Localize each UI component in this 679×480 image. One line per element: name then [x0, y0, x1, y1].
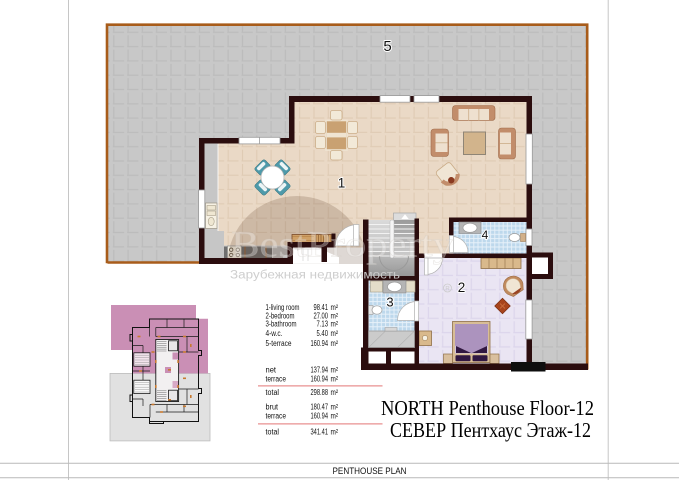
svg-text:m²: m² [331, 365, 339, 374]
svg-text:Зарубежная недвижимость: Зарубежная недвижимость [230, 270, 400, 282]
svg-text:m²: m² [331, 329, 339, 338]
svg-text:3: 3 [386, 295, 393, 310]
svg-text:160.94: 160.94 [311, 339, 329, 348]
svg-text:2: 2 [458, 280, 466, 295]
svg-text:m²: m² [331, 403, 339, 412]
svg-text:m²: m² [331, 388, 339, 397]
svg-text:m²: m² [331, 375, 339, 384]
svg-text:PENTHOUSE PLAN: PENTHOUSE PLAN [333, 466, 407, 477]
svg-text:7.13: 7.13 [317, 320, 329, 329]
svg-text:m²: m² [331, 320, 339, 329]
svg-text:5: 5 [383, 38, 391, 55]
svg-text:net: net [266, 365, 277, 374]
svg-text:R: R [445, 287, 450, 293]
svg-text:BestProperty: BestProperty [231, 225, 455, 266]
svg-text:4-w.c.: 4-w.c. [266, 329, 283, 338]
svg-text:СЕВЕР Пентхаус Этаж-12: СЕВЕР Пентхаус Этаж-12 [390, 418, 591, 442]
svg-text:298.88: 298.88 [311, 388, 329, 397]
svg-text:terrace: terrace [266, 375, 287, 384]
svg-text:m²: m² [331, 339, 339, 348]
svg-text:total: total [266, 428, 280, 437]
svg-text:180.47: 180.47 [311, 403, 329, 412]
svg-text:3-bathroom: 3-bathroom [266, 320, 297, 329]
svg-text:m²: m² [331, 411, 339, 420]
svg-text:1: 1 [338, 176, 346, 191]
svg-text:137.94: 137.94 [311, 365, 329, 374]
svg-text:4: 4 [482, 228, 489, 242]
svg-text:160.94: 160.94 [311, 375, 329, 384]
svg-text:341.41: 341.41 [311, 428, 329, 437]
svg-text:160.94: 160.94 [311, 411, 329, 420]
svg-text:total: total [266, 388, 280, 397]
svg-text:5-terrace: 5-terrace [266, 339, 292, 348]
svg-text:5.40: 5.40 [317, 329, 329, 338]
svg-text:brut: brut [266, 403, 279, 412]
svg-text:m²: m² [331, 428, 339, 437]
svg-text:NORTH Penthouse Floor-12: NORTH Penthouse Floor-12 [381, 396, 594, 420]
svg-text:terrace: terrace [266, 411, 287, 420]
